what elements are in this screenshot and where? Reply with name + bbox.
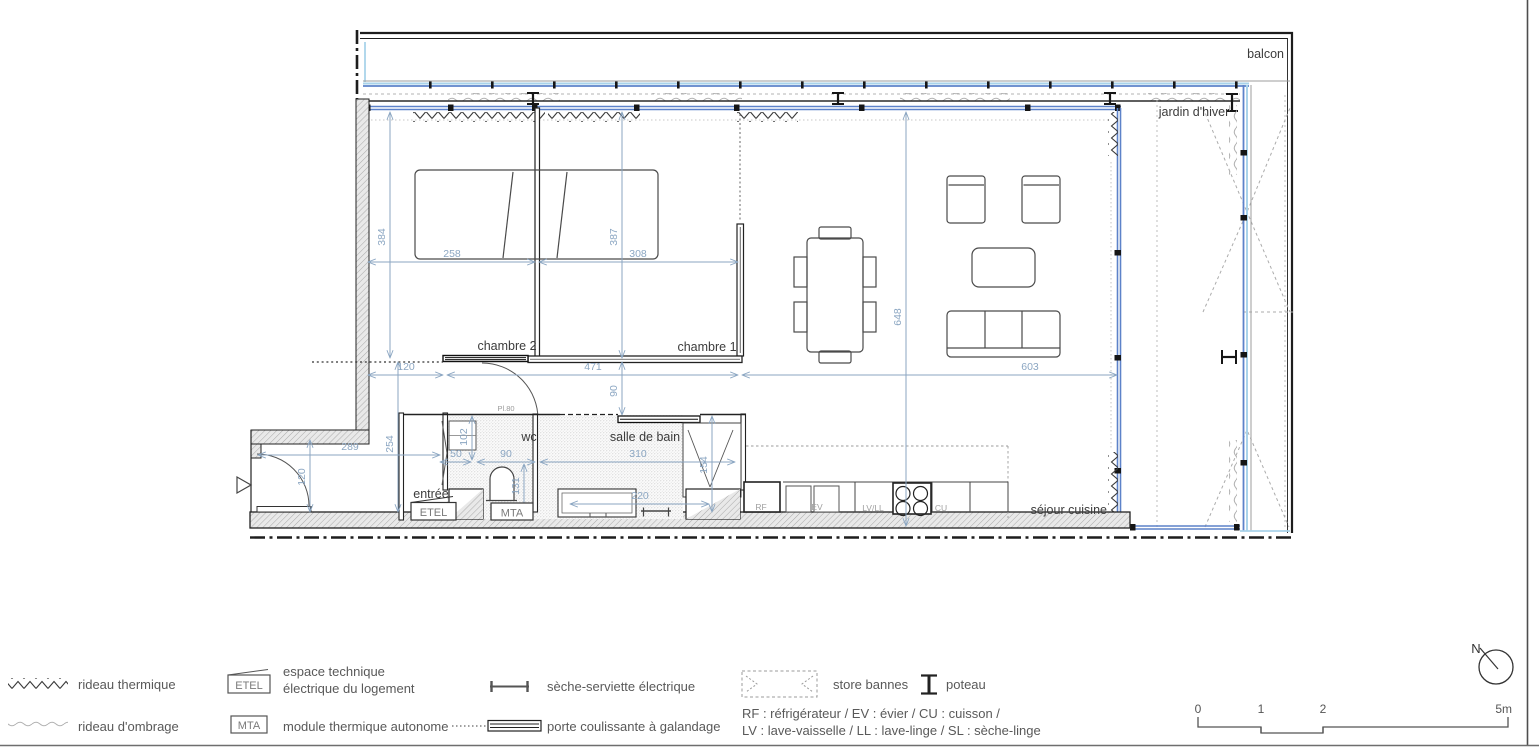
exterior-walls: [250, 99, 1292, 538]
etel-legend-label: ETEL: [235, 680, 263, 692]
dim-120-top: 120: [397, 361, 415, 373]
etel-legend-icon: ETEL: [228, 670, 270, 694]
shade-curtain-east-bottom: [1229, 440, 1237, 522]
etel-desc-line2: électrique du logement: [283, 681, 415, 696]
rideau-thermique-label: rideau thermique: [78, 677, 176, 692]
shade-curtain-east-top: [1229, 105, 1237, 175]
scale-5m: 5m: [1495, 702, 1512, 716]
sliding-door-icon: [452, 721, 541, 732]
facade-east-jardin-dhiver: [1108, 85, 1293, 531]
scale-bar: 0 1 2 5m: [1195, 702, 1512, 733]
dim-387: 387: [608, 228, 620, 246]
dim-648: 648: [892, 308, 904, 326]
jardin-dhiver-label: jardin d'hiver: [1158, 105, 1229, 119]
dim-308: 308: [629, 248, 647, 260]
dining-table: [794, 227, 876, 363]
entry-door-leaf: [257, 507, 311, 513]
thermal-curtain-east-top: [1108, 112, 1118, 156]
scale-2: 2: [1320, 702, 1327, 716]
dim-254: 254: [384, 435, 396, 453]
dim-220: 220: [631, 490, 649, 502]
abbrev-line1: RF : réfrigérateur / EV : évier / CU : c…: [742, 706, 1000, 721]
dim-258: 258: [443, 248, 461, 260]
dim-603: 603: [1021, 361, 1039, 373]
dim-50: 50: [450, 448, 462, 460]
dim-102: 102: [458, 428, 470, 446]
dim-131: 131: [510, 477, 522, 495]
mta-legend-icon: MTA: [231, 716, 267, 733]
north-indicator: N: [1471, 641, 1513, 684]
dim-310: 310: [629, 448, 647, 460]
shade-curtain-icon: [8, 720, 68, 729]
mta-legend-label: MTA: [238, 720, 261, 732]
dim-90-wc: 90: [500, 448, 512, 460]
abbrev-line2: LV : lave-vaisselle / LL : lave-linge / …: [742, 723, 1041, 738]
porte-coulissante-label: porte coulissante à galandage: [547, 719, 720, 734]
floor-plan-sheet: RF EV LV/LL CU: [0, 0, 1539, 748]
scale-1: 1: [1258, 702, 1265, 716]
vanity: [558, 489, 636, 517]
etel-desc-line1: espace technique: [283, 664, 385, 679]
chambre1-label: chambre 1: [677, 340, 736, 354]
facade-north-glazing: [363, 81, 1290, 122]
dim-90-couloir: 90: [608, 385, 620, 397]
dim-289: 289: [341, 441, 359, 453]
thermal-curtain-east-bottom: [1108, 452, 1118, 518]
seche-serviette-label: sèche-serviette électrique: [547, 679, 695, 694]
rideau-ombrage-label: rideau d'ombrage: [78, 719, 179, 734]
cooktop-label: CU: [935, 503, 947, 513]
kitchen: RF EV LV/LL CU: [744, 446, 1008, 518]
dim-120-entree: 120: [296, 468, 308, 486]
balcon-label: balcon: [1247, 47, 1284, 61]
cooktop: [893, 483, 931, 516]
scale-0: 0: [1195, 702, 1202, 716]
store-bannes-icon: [742, 671, 817, 697]
pl80-label: Pl.80: [497, 404, 514, 413]
north-label: N: [1471, 641, 1480, 656]
thermal-curtain-icon: [8, 678, 68, 689]
living-area: [947, 176, 1060, 357]
salle-de-bain-label: salle de bain: [610, 430, 680, 444]
sink-label: EV: [811, 502, 823, 512]
poteau-top-icons: [527, 93, 1238, 111]
poteau-label: poteau: [946, 677, 986, 692]
dishwasher-label: LV/LL: [862, 503, 884, 513]
floor-plan-drawing: RF EV LV/LL CU: [0, 0, 1539, 748]
fridge-label: RF: [755, 502, 766, 512]
mta-plan-label: MTA: [501, 508, 524, 520]
etel-plan-label: ETEL: [420, 507, 448, 519]
sliding-door-chambre2: [443, 356, 528, 362]
poteau-icon: [921, 676, 937, 694]
sliding-door-sdb: [618, 416, 700, 423]
dim-471: 471: [584, 361, 602, 373]
poteau-east-icon: [1222, 350, 1236, 364]
interior-walls: [312, 108, 744, 419]
entree-label: entrée: [413, 487, 448, 501]
page-borders: [0, 0, 1539, 746]
coffee-table: [972, 248, 1035, 287]
dim-154: 154: [698, 456, 710, 474]
chambre2-label: chambre 2: [477, 339, 536, 353]
sink-left: [786, 486, 811, 512]
wc-label: wc: [520, 430, 536, 444]
entry-arrow-icon: [237, 477, 251, 493]
mta-desc: module thermique autonome: [283, 719, 449, 734]
store-bannes-label: store bannes: [833, 677, 909, 692]
sejour-cuisine-label: séjour cuisine: [1031, 503, 1107, 517]
legend: rideau thermique rideau d'ombrage ETEL e…: [8, 664, 1041, 738]
towel-dryer-icon: [490, 681, 529, 692]
dim-384: 384: [376, 228, 388, 246]
sofa: [947, 311, 1060, 357]
mta-box: MTA: [491, 503, 533, 520]
